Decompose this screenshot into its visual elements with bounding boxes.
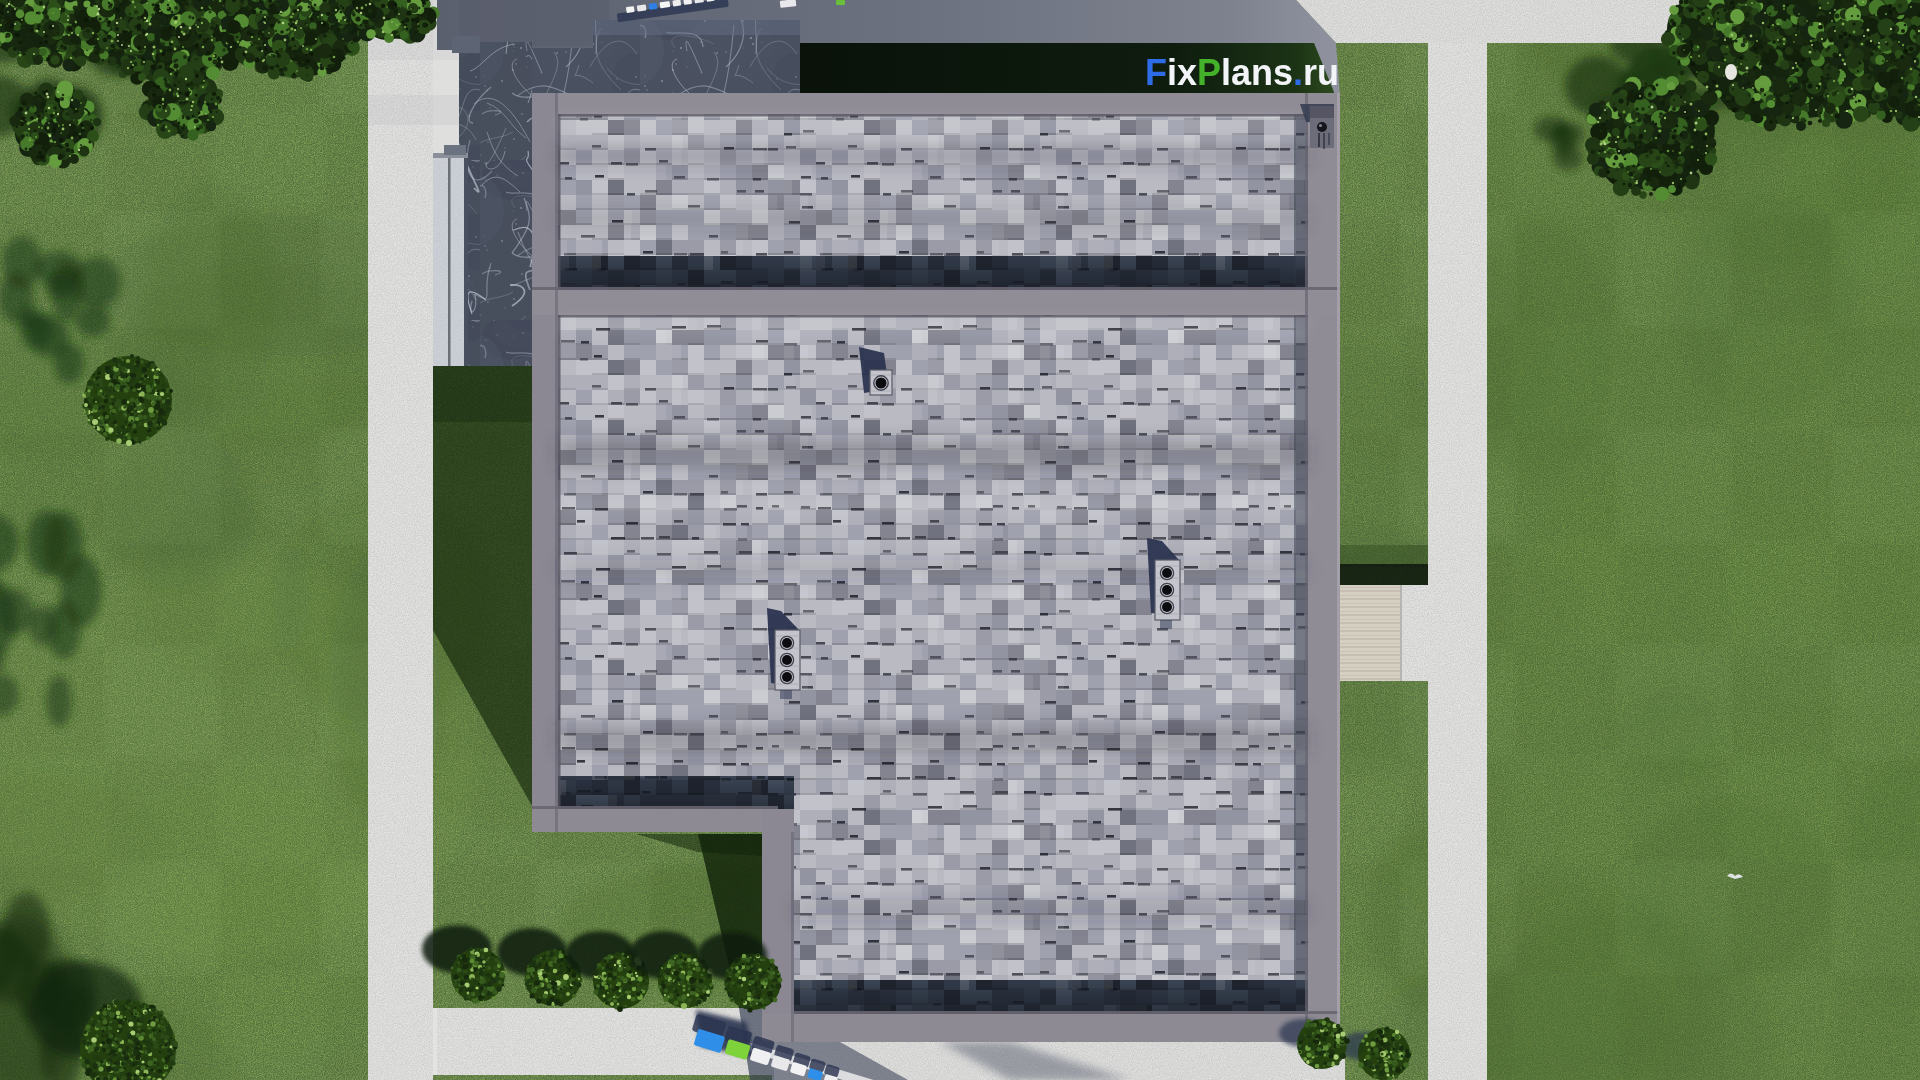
- svg-text:FixPlans.ru: FixPlans.ru: [1145, 52, 1339, 93]
